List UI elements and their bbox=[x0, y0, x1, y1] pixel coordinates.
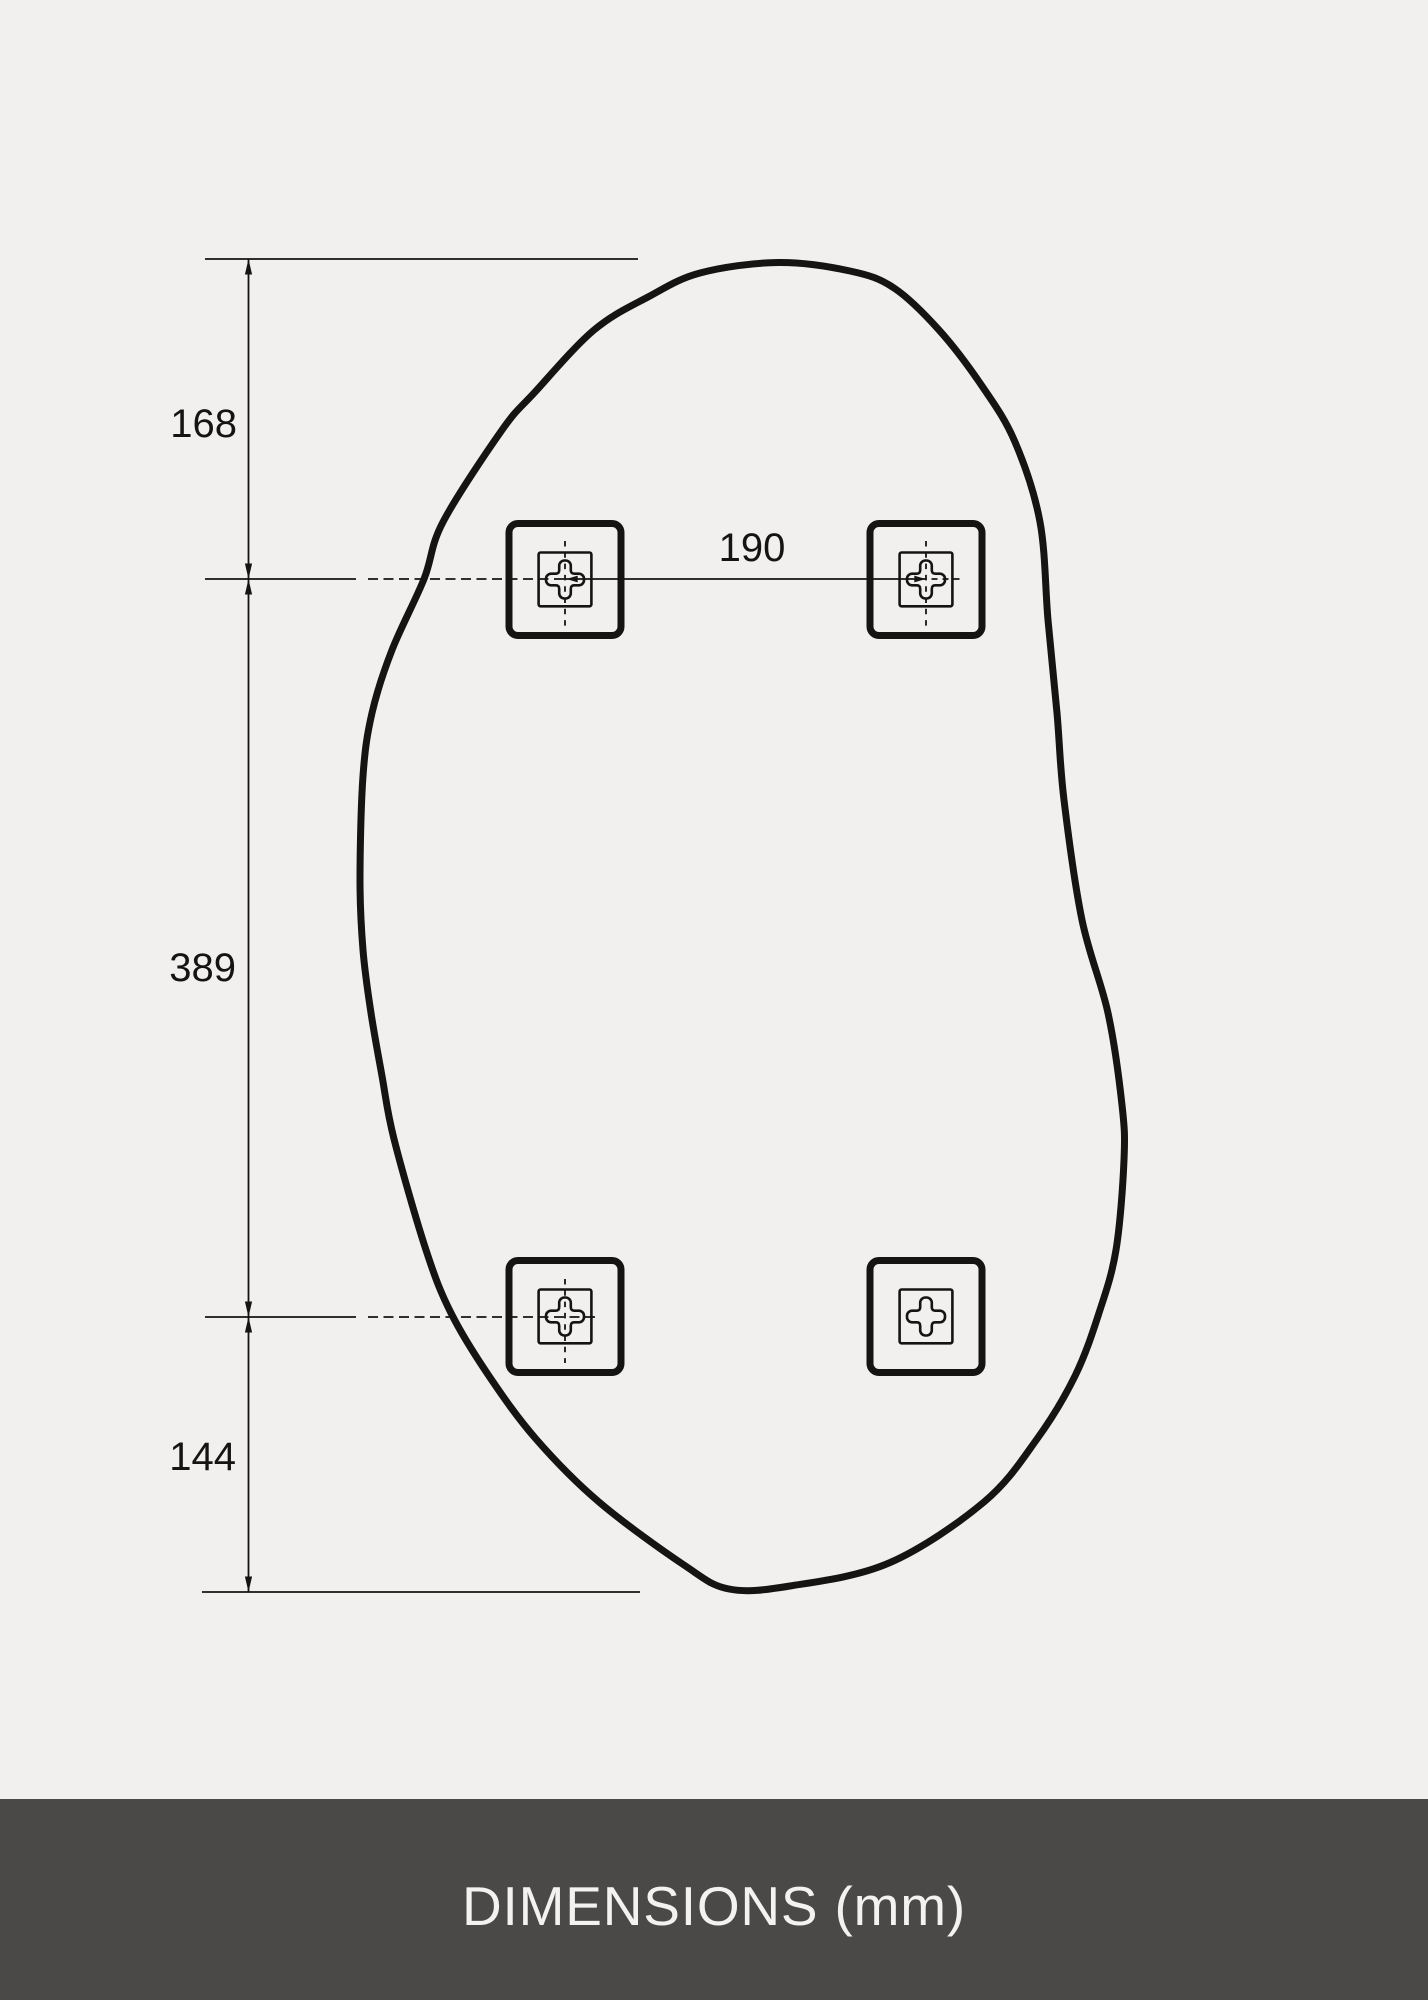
svg-text:144: 144 bbox=[169, 1435, 236, 1479]
svg-text:DIMENSIONS (mm): DIMENSIONS (mm) bbox=[462, 1875, 966, 1937]
svg-text:389: 389 bbox=[169, 946, 236, 990]
svg-text:168: 168 bbox=[170, 402, 237, 446]
svg-text:190: 190 bbox=[719, 526, 786, 570]
